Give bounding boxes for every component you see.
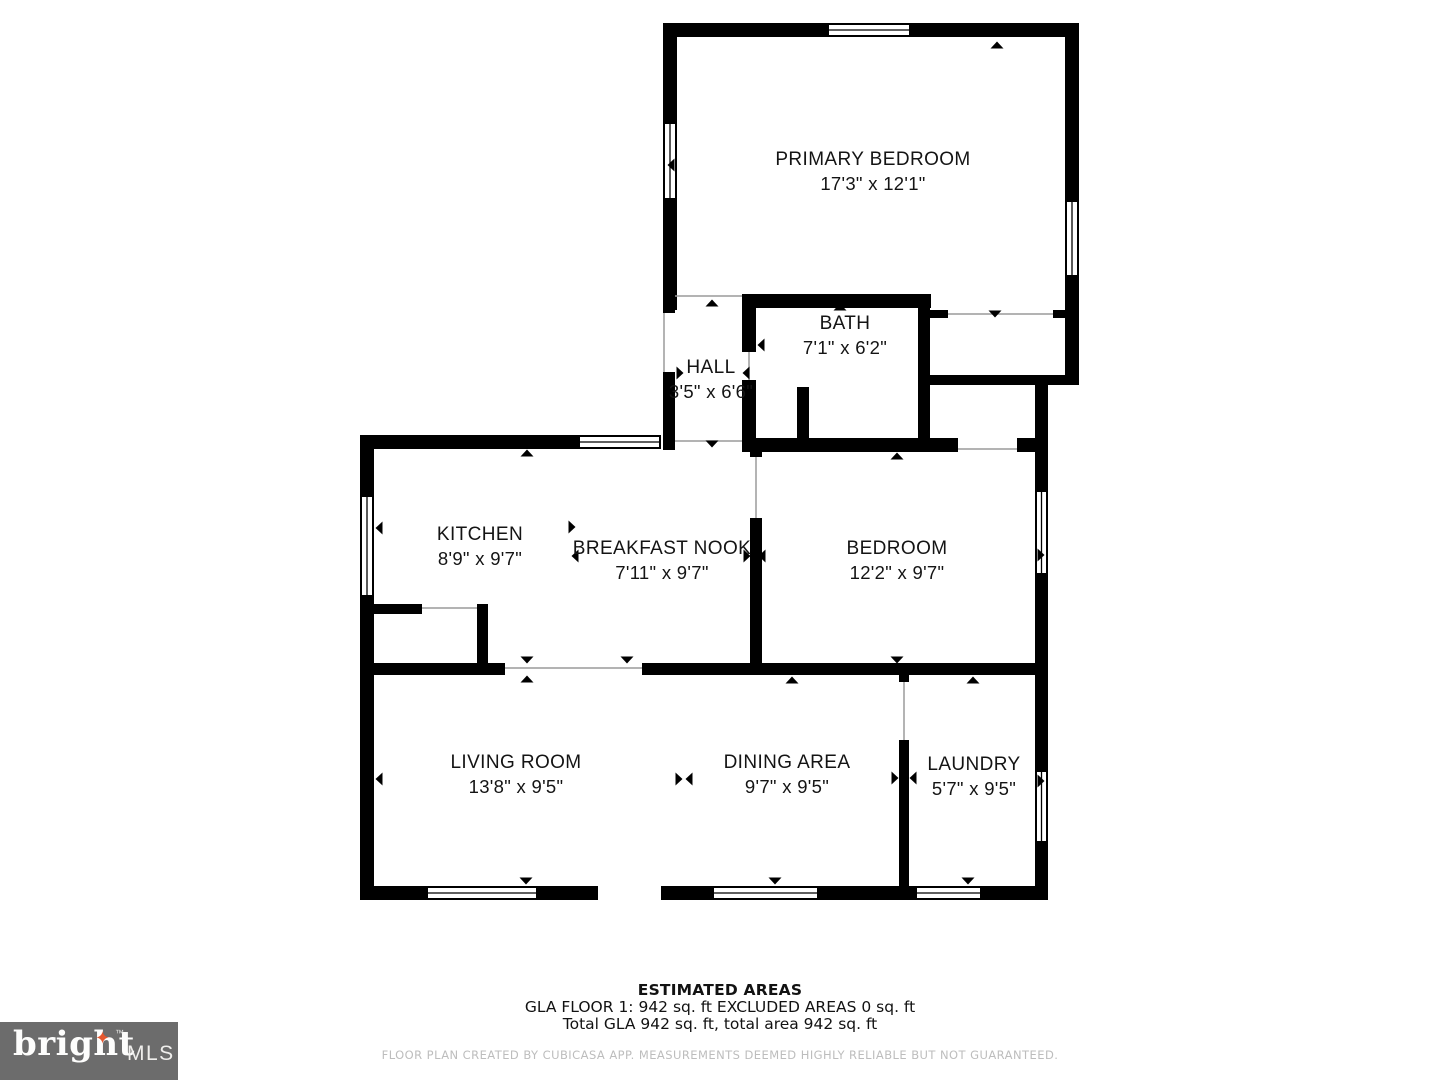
- wall-segment: [982, 886, 1048, 900]
- wall-segment: [663, 293, 675, 313]
- wall-segment: [1065, 277, 1079, 385]
- wall-segment: [477, 604, 488, 668]
- room-name: BEDROOM: [847, 537, 948, 561]
- room-name: PRIMARY BEDROOM: [775, 148, 970, 172]
- wall-segment: [750, 438, 762, 457]
- window: [1066, 201, 1078, 276]
- cubicasa-disclaimer: FLOOR PLAN CREATED BY CUBICASA APP. MEAS…: [0, 1048, 1440, 1062]
- wall-segment: [929, 375, 1078, 385]
- wall-segment: [918, 294, 930, 452]
- wall-segment: [929, 310, 948, 318]
- wall-segment: [899, 675, 909, 682]
- room-label-primary-bedroom: PRIMARY BEDROOM 17'3" x 12'1": [775, 148, 970, 196]
- wall-segment: [742, 294, 931, 308]
- wall-segment: [360, 886, 426, 900]
- room-label-hall: HALL 3'5" x 6'6": [669, 356, 753, 404]
- wall-segment: [1053, 310, 1068, 318]
- room-dimensions: 12'2" x 9'7": [847, 561, 948, 585]
- direction-tick-icon: [769, 878, 782, 885]
- room-name: HALL: [669, 356, 753, 380]
- room-name: DINING AREA: [724, 751, 851, 775]
- room-dimensions: 3'5" x 6'6": [669, 380, 753, 404]
- direction-tick-icon: [706, 300, 719, 307]
- wall-segment: [742, 438, 958, 452]
- wall-segment: [663, 23, 827, 37]
- direction-tick-icon: [520, 878, 533, 885]
- room-dimensions: 7'1" x 6'2": [803, 336, 887, 360]
- direction-tick-icon: [891, 453, 904, 460]
- window: [361, 496, 373, 596]
- room-dimensions: 13'8" x 9'5": [450, 775, 581, 799]
- room-dimensions: 8'9" x 9'7": [437, 547, 523, 571]
- direction-tick-icon: [569, 521, 576, 534]
- wall-segment: [1035, 575, 1048, 770]
- wall-segment: [819, 886, 915, 900]
- room-label-living-room: LIVING ROOM 13'8" x 9'5": [450, 751, 581, 799]
- bright-mls-logo: bright ✦ ™ MLS: [0, 1022, 178, 1080]
- room-label-kitchen: KITCHEN 8'9" x 9'7": [437, 523, 523, 571]
- direction-tick-icon: [521, 450, 534, 457]
- wall-segment: [642, 663, 1048, 675]
- wall-segment: [899, 740, 909, 886]
- window: [579, 436, 660, 448]
- direction-tick-icon: [706, 441, 719, 448]
- wall-segment: [663, 37, 677, 122]
- room-name: BREAKFAST NOOK: [573, 537, 751, 561]
- wall-segment: [360, 449, 374, 495]
- wall-segment: [742, 294, 756, 352]
- estimated-areas-footer: ESTIMATED AREAS GLA FLOOR 1: 942 sq. ft …: [0, 981, 1440, 1062]
- floor-plan-page: PRIMARY BEDROOM 17'3" x 12'1" BATH 7'1" …: [0, 0, 1440, 1080]
- estimated-areas-title: ESTIMATED AREAS: [0, 981, 1440, 999]
- direction-tick-icon: [967, 677, 980, 684]
- wall-segment: [750, 518, 762, 675]
- direction-tick-icon: [376, 773, 383, 786]
- direction-tick-icon: [621, 657, 634, 664]
- total-gla-line: Total GLA 942 sq. ft, total area 942 sq.…: [0, 1016, 1440, 1033]
- window: [828, 24, 910, 36]
- room-dimensions: 7'11" x 9'7": [573, 561, 751, 585]
- trademark-symbol: ™: [115, 1028, 124, 1038]
- window: [427, 887, 537, 899]
- room-label-bedroom: BEDROOM 12'2" x 9'7": [847, 537, 948, 585]
- direction-tick-icon: [962, 878, 975, 885]
- star-icon: ✦: [95, 1028, 110, 1049]
- wall-segment: [1035, 375, 1048, 490]
- room-label-bath: BATH 7'1" x 6'2": [803, 312, 887, 360]
- direction-tick-icon: [786, 677, 799, 684]
- wall-segment: [911, 23, 1079, 37]
- direction-tick-icon: [376, 522, 383, 535]
- direction-tick-icon: [676, 773, 683, 786]
- room-label-laundry: LAUNDRY 5'7" x 9'5": [927, 753, 1020, 801]
- wall-segment: [363, 604, 422, 614]
- room-dimensions: 17'3" x 12'1": [775, 172, 970, 196]
- wall-segment: [661, 886, 712, 900]
- window: [1036, 491, 1047, 574]
- direction-tick-icon: [891, 657, 904, 664]
- wall-segment: [1065, 37, 1079, 200]
- direction-tick-icon: [991, 42, 1004, 49]
- room-name: KITCHEN: [437, 523, 523, 547]
- mls-wordmark: MLS: [127, 1042, 175, 1066]
- direction-tick-icon: [521, 676, 534, 683]
- wall-segment: [360, 597, 374, 900]
- wall-segment: [538, 886, 598, 900]
- wall-segment: [360, 435, 578, 449]
- direction-tick-icon: [892, 772, 899, 785]
- gla-floor-line: GLA FLOOR 1: 942 sq. ft EXCLUDED AREAS 0…: [0, 999, 1440, 1016]
- room-label-breakfast-nook: BREAKFAST NOOK 7'11" x 9'7": [573, 537, 751, 585]
- wall-segment: [360, 663, 505, 675]
- window: [713, 887, 818, 899]
- room-name: BATH: [803, 312, 887, 336]
- room-dimensions: 9'7" x 9'5": [724, 775, 851, 799]
- direction-tick-icon: [910, 772, 917, 785]
- room-label-dining-area: DINING AREA 9'7" x 9'5": [724, 751, 851, 799]
- room-dimensions: 5'7" x 9'5": [927, 777, 1020, 801]
- room-name: LIVING ROOM: [450, 751, 581, 775]
- room-name: LAUNDRY: [927, 753, 1020, 777]
- direction-tick-icon: [521, 657, 534, 664]
- direction-tick-icon: [758, 339, 765, 352]
- direction-tick-icon: [686, 773, 693, 786]
- window: [916, 887, 981, 899]
